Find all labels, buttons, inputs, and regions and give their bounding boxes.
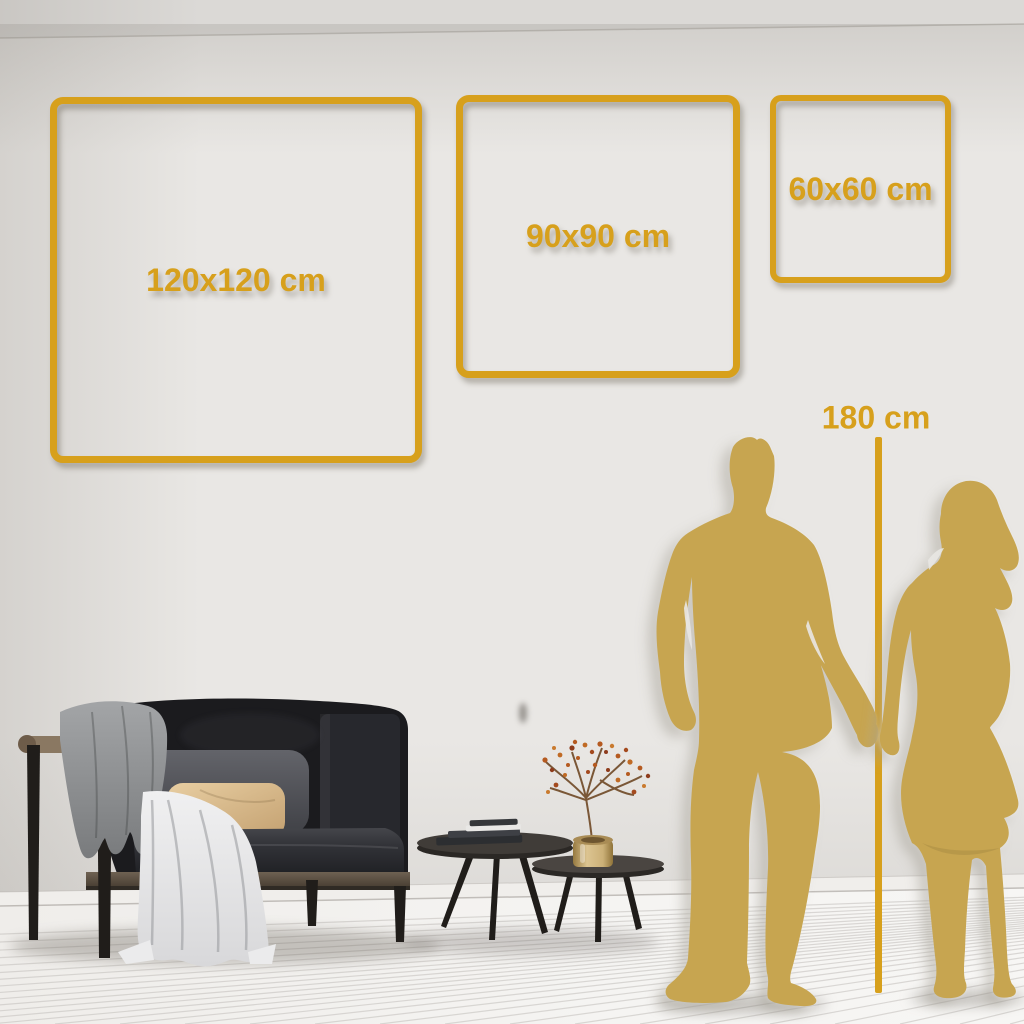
height-label: 180 cm bbox=[822, 400, 931, 437]
size-label-60: 60x60 cm bbox=[788, 171, 932, 208]
sofa-leg-front-left bbox=[27, 745, 40, 940]
size-label-120: 120x120 cm bbox=[146, 262, 326, 299]
vase bbox=[573, 835, 613, 867]
size-label-90: 90x90 cm bbox=[526, 218, 670, 255]
height-line bbox=[875, 437, 882, 993]
size-guide-image: 120x120 cm 90x90 cm 60x60 cm 180 cm bbox=[0, 0, 1024, 1024]
tables-shadow bbox=[402, 929, 658, 955]
size-frame-120: 120x120 cm bbox=[50, 97, 422, 463]
small-table-leg-2 bbox=[595, 874, 602, 942]
size-frame-90: 90x90 cm bbox=[456, 95, 740, 378]
wall-smudge bbox=[519, 703, 527, 723]
sofa-leg-back-right bbox=[394, 886, 406, 942]
sofa-leg-front-right bbox=[306, 880, 318, 926]
size-frame-60: 60x60 cm bbox=[770, 95, 951, 283]
